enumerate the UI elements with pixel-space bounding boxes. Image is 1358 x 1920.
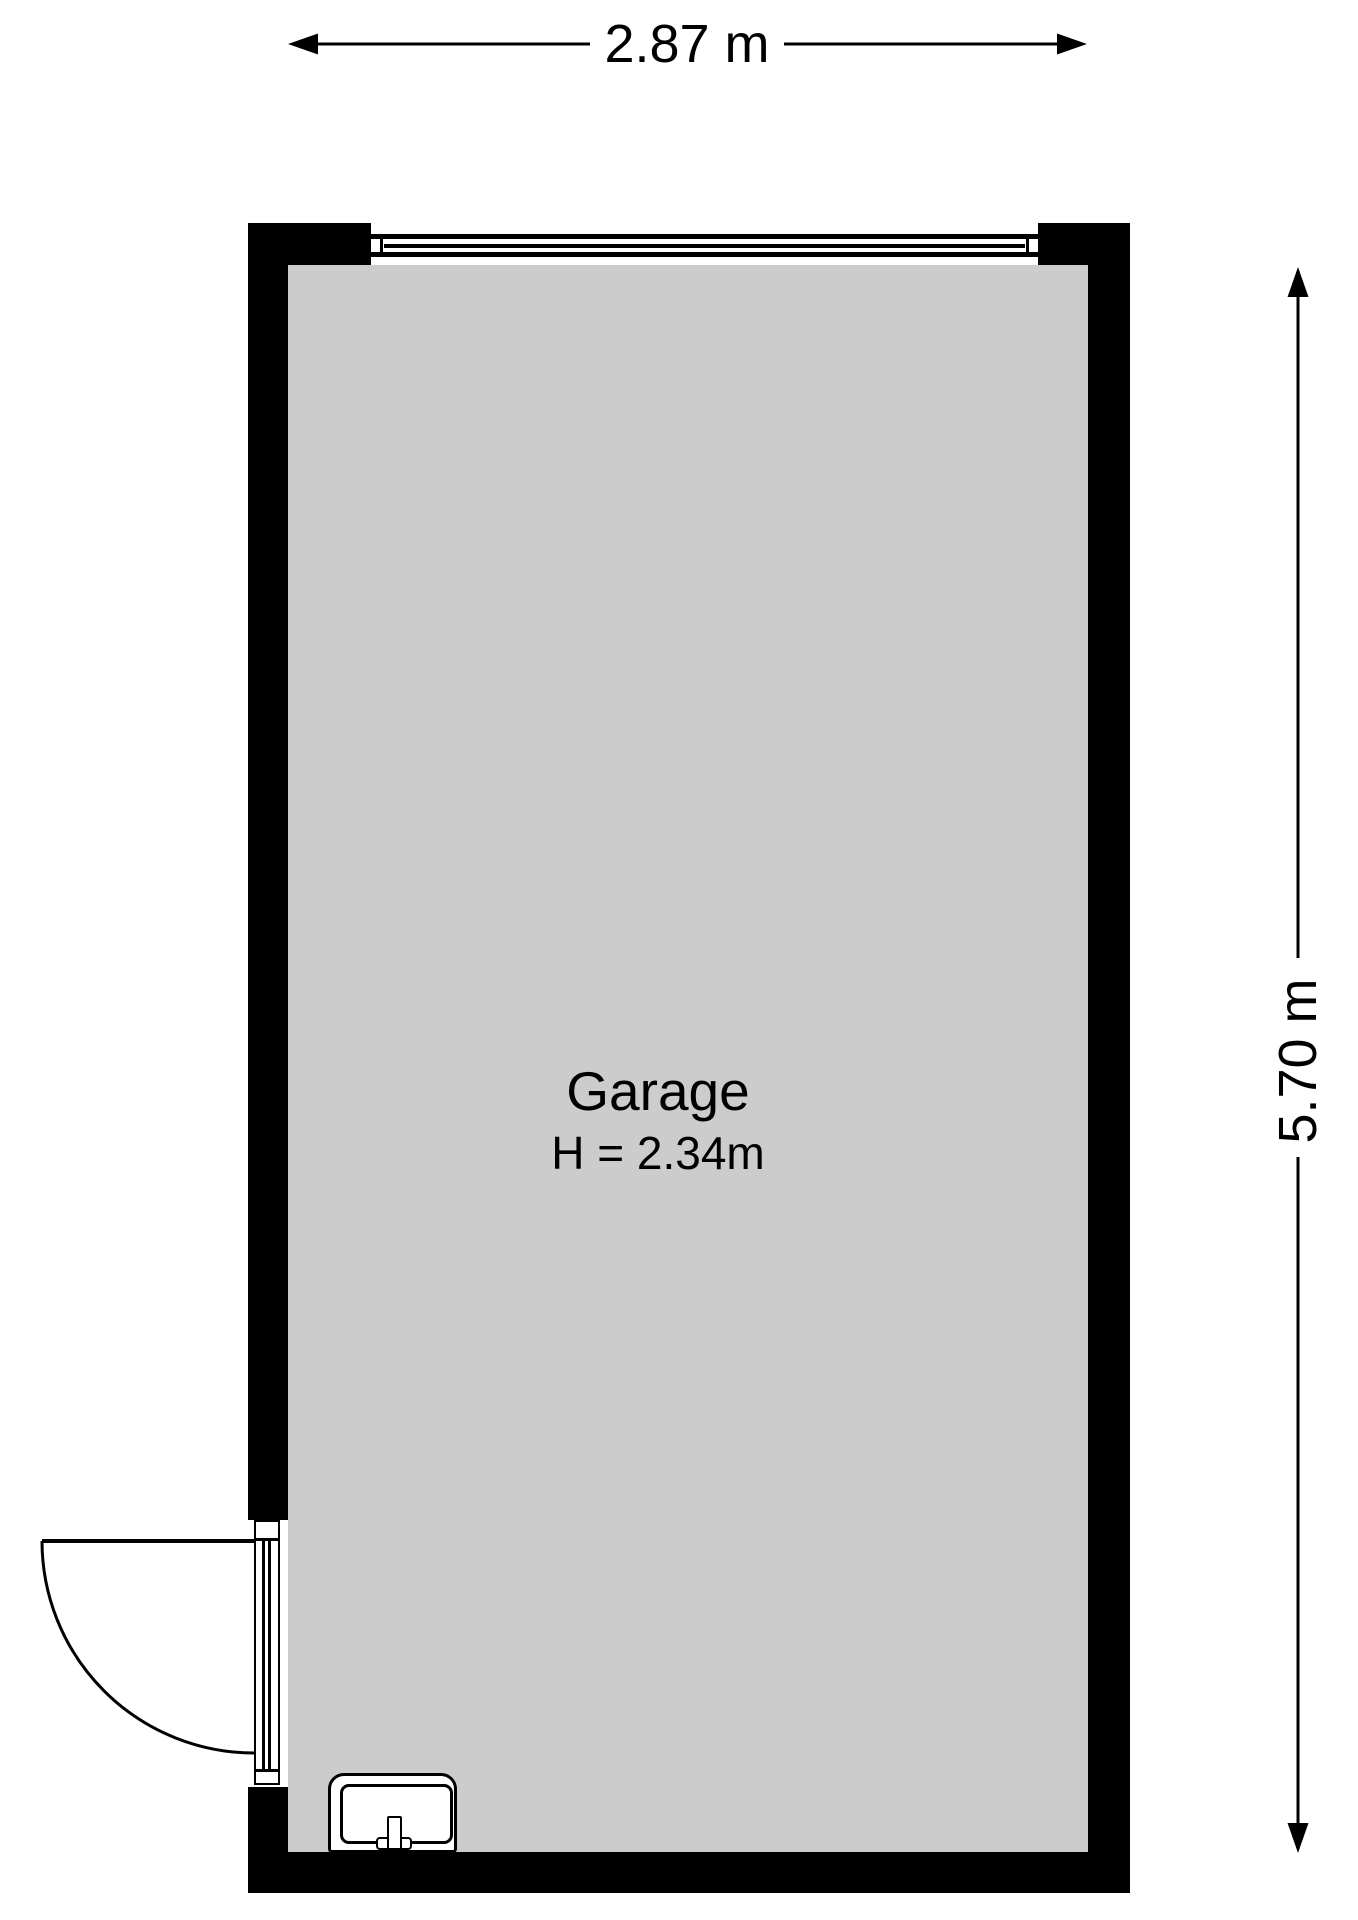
sink-faucet <box>387 1816 402 1850</box>
wall-right <box>1088 223 1130 1893</box>
door-jamb-bottom <box>256 1769 278 1772</box>
window-frame-cap-right <box>1026 239 1029 252</box>
dim-height-label: 5.70 m <box>1271 978 1325 1143</box>
room-ceiling-height-label: H = 2.34m <box>551 1130 765 1176</box>
room-floor <box>288 265 1088 1852</box>
sink-icon <box>328 1773 457 1853</box>
wall-left-upper <box>248 223 288 1520</box>
arrowhead-left-icon <box>288 34 318 55</box>
arrowhead-right-icon <box>1057 34 1087 55</box>
dim-width-label: 2.87 m <box>604 17 769 71</box>
wall-bottom <box>248 1852 1130 1893</box>
door-frame-icon <box>254 1520 280 1785</box>
door-jamb-top <box>256 1538 278 1541</box>
arrowhead-up-icon <box>1288 267 1309 297</box>
arrowhead-down-icon <box>1288 1823 1309 1853</box>
window-icon <box>371 234 1038 257</box>
window-frame-cap-left <box>380 239 383 252</box>
floorplan-canvas: 2.87 m 5.70 m Garage H = 2.34m <box>0 0 1358 1920</box>
door-swing-arc <box>42 1541 254 1753</box>
room-name-label: Garage <box>566 1064 749 1119</box>
window-glass-line <box>384 244 1025 248</box>
door-panel-line <box>262 1541 265 1769</box>
door-panel-line <box>268 1541 271 1769</box>
